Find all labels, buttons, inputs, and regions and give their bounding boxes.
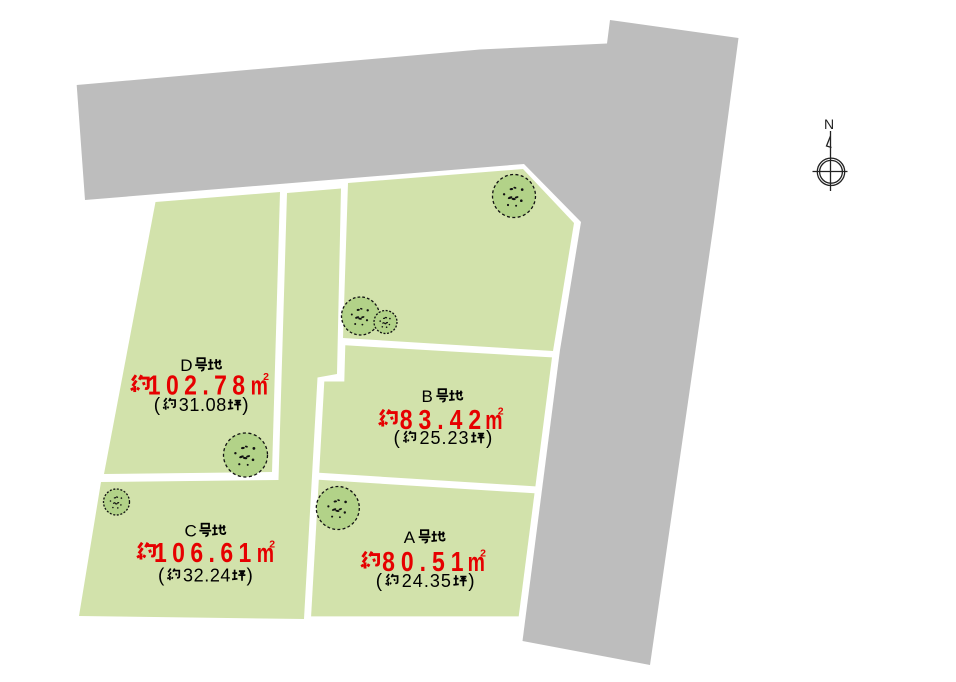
svg-text:25.23: 25.23 [420,428,470,448]
svg-text:B: B [422,387,433,406]
svg-text:2: 2 [498,406,504,418]
svg-text:31.08: 31.08 [179,395,227,415]
svg-text:): ) [247,566,253,587]
svg-text:2: 2 [263,371,269,383]
svg-text:(: ( [394,428,401,449]
svg-text:): ) [242,395,248,416]
svg-text:): ) [486,428,492,449]
svg-text:(: ( [158,566,165,587]
svg-text:24.35: 24.35 [402,571,452,591]
svg-text:N: N [824,116,834,132]
svg-text:A: A [404,528,416,547]
svg-text:32.24: 32.24 [183,566,231,586]
svg-text:(: ( [376,571,383,592]
svg-text:2: 2 [480,548,486,560]
svg-text:(: ( [154,395,161,416]
svg-text:2: 2 [269,539,275,551]
svg-text:): ) [468,571,474,592]
svg-text:106.61: 106.61 [154,538,257,569]
